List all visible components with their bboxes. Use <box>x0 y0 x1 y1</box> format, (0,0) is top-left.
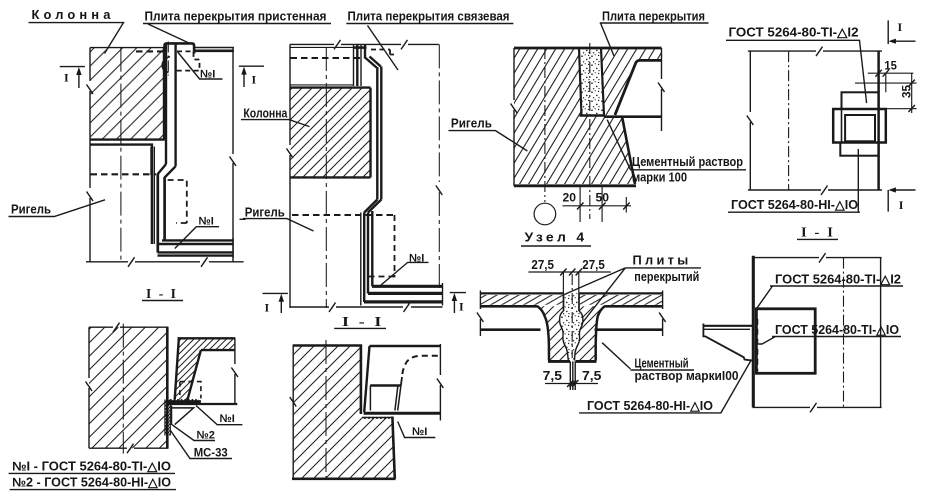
svg-text:раствор маркиI00: раствор маркиI00 <box>635 369 739 383</box>
svg-text:Узел 4: Узел 4 <box>525 231 588 245</box>
svg-text:марки 100: марки 100 <box>632 171 687 185</box>
svg-text:I: I <box>459 300 464 314</box>
svg-text:15: 15 <box>884 59 897 73</box>
svg-text:Ригель: Ригель <box>11 203 51 217</box>
svg-text:Плита перекрытия связевая: Плита перекрытия связевая <box>348 10 510 24</box>
svg-text:20: 20 <box>563 191 577 205</box>
svg-text:№2 - ГОСТ 5264-80-НI-△IO: №2 - ГОСТ 5264-80-НI-△IO <box>12 476 171 490</box>
svg-text:№I: №I <box>220 413 235 425</box>
svg-text:I: I <box>265 301 270 315</box>
svg-text:№2: №2 <box>197 430 215 442</box>
svg-text:МС-33: МС-33 <box>194 446 228 460</box>
svg-text:I - I: I - I <box>146 286 178 301</box>
svg-text:ГОСТ 5264-80-НI-△IO: ГОСТ 5264-80-НI-△IO <box>731 198 858 212</box>
svg-text:35: 35 <box>900 85 914 98</box>
svg-text:50: 50 <box>596 191 610 205</box>
svg-text:перекрытий: перекрытий <box>634 270 699 284</box>
svg-text:I: I <box>898 20 903 34</box>
svg-text:Ригель: Ригель <box>451 117 492 131</box>
svg-text:I - I: I - I <box>342 314 384 329</box>
svg-text:Плита перекрытия пристенная: Плита перекрытия пристенная <box>145 10 327 24</box>
svg-text:ГОСТ 5264-80-ТI-△IO: ГОСТ 5264-80-ТI-△IO <box>775 323 899 337</box>
svg-text:№I - ГОСТ 5264-80-ТI-△IO: №I - ГОСТ 5264-80-ТI-△IO <box>12 459 171 473</box>
svg-text:7,5: 7,5 <box>582 369 601 383</box>
svg-text:Плиты: Плиты <box>633 253 692 267</box>
svg-text:I: I <box>64 71 69 85</box>
svg-text:Цементный раствор: Цементный раствор <box>632 155 743 169</box>
svg-text:I - I: I - I <box>801 224 835 239</box>
svg-text:№I: №I <box>199 216 214 228</box>
svg-text:Плита перекрытия: Плита перекрытия <box>602 10 705 24</box>
svg-text:Колонна: Колонна <box>243 106 288 120</box>
svg-text:I: I <box>899 198 904 212</box>
svg-text:ГОСТ 5264-80-НI-△IO: ГОСТ 5264-80-НI-△IO <box>587 399 713 413</box>
svg-text:№I: №I <box>412 426 427 438</box>
svg-text:7,5: 7,5 <box>543 369 562 383</box>
svg-text:Колонна: Колонна <box>32 8 115 22</box>
svg-text:ГОСТ 5264-80-ТI-△I2: ГОСТ 5264-80-ТI-△I2 <box>775 272 901 286</box>
svg-text:27,5: 27,5 <box>531 258 554 272</box>
svg-text:I: I <box>252 73 257 87</box>
svg-text:ГОСТ 5264-80-ТI-△I2: ГОСТ 5264-80-ТI-△I2 <box>729 25 859 39</box>
svg-text:Ригель: Ригель <box>245 206 285 220</box>
svg-text:27,5: 27,5 <box>582 258 605 272</box>
